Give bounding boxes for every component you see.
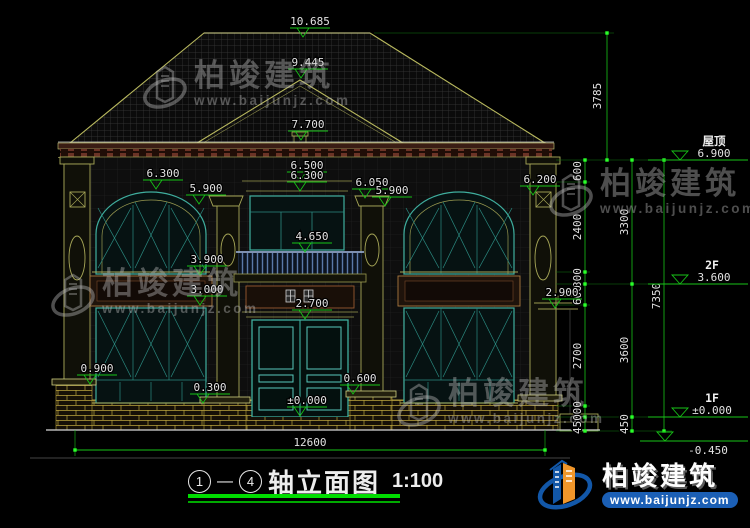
svg-text:6.300: 6.300 bbox=[290, 169, 323, 182]
svg-text:9.445: 9.445 bbox=[291, 56, 324, 69]
axis-dash: — bbox=[217, 473, 233, 491]
svg-text:3.900: 3.900 bbox=[190, 253, 223, 266]
level-roof: 屋顶 6.900 bbox=[648, 134, 748, 160]
door-step bbox=[248, 417, 352, 430]
svg-text:3.000: 3.000 bbox=[190, 283, 223, 296]
axis-bubble-end: 4 bbox=[239, 470, 262, 493]
svg-text:0.900: 0.900 bbox=[80, 362, 113, 375]
elevation-drawing: 3785 600 2400 300 600 2700 300 450 3300 … bbox=[0, 0, 750, 528]
svg-text:300: 300 bbox=[571, 268, 584, 288]
title-scale: 1:100 bbox=[392, 470, 443, 493]
svg-text:7.700: 7.700 bbox=[291, 118, 324, 131]
title-underline-2 bbox=[188, 501, 400, 503]
eave-cornice bbox=[58, 142, 554, 158]
level-1f: 1F ±0.000 bbox=[648, 391, 748, 417]
svg-text:屋顶: 屋顶 bbox=[703, 134, 726, 148]
svg-text:600: 600 bbox=[571, 161, 584, 181]
cad-elevation-screenshot: 3785 600 2400 300 600 2700 300 450 3300 … bbox=[0, 0, 750, 528]
brand-logo-block: 柏竣建筑 www.baijunjz.com bbox=[536, 455, 738, 517]
svg-text:2.900: 2.900 bbox=[545, 286, 578, 299]
svg-text:6.200: 6.200 bbox=[523, 173, 556, 186]
brand-name: 柏竣建筑 bbox=[602, 463, 738, 489]
svg-text:±0.000: ±0.000 bbox=[287, 394, 327, 407]
balcony-slab bbox=[234, 274, 366, 282]
level-2f: 2F 3.600 bbox=[648, 258, 748, 284]
balcony-railing bbox=[238, 253, 362, 274]
right-wing-windows bbox=[398, 192, 520, 403]
svg-text:450: 450 bbox=[571, 414, 584, 434]
svg-text:1F: 1F bbox=[705, 391, 719, 405]
svg-text:5.900: 5.900 bbox=[375, 184, 408, 197]
svg-text:0.600: 0.600 bbox=[343, 372, 376, 385]
svg-text:±0.000: ±0.000 bbox=[692, 404, 732, 417]
svg-text:6.300: 6.300 bbox=[146, 167, 179, 180]
svg-text:2700: 2700 bbox=[571, 343, 584, 370]
axis-bubble-start: 1 bbox=[188, 470, 211, 493]
svg-text:2F: 2F bbox=[705, 258, 719, 272]
brand-url: www.baijunjz.com bbox=[602, 492, 738, 508]
svg-text:3.600: 3.600 bbox=[697, 271, 730, 284]
svg-text:450: 450 bbox=[618, 414, 631, 434]
svg-text:2.700: 2.700 bbox=[295, 297, 328, 310]
svg-text:6.900: 6.900 bbox=[697, 147, 730, 160]
title-underline bbox=[188, 494, 400, 498]
svg-text:2400: 2400 bbox=[571, 214, 584, 241]
dim-total: 7350 bbox=[650, 283, 663, 310]
svg-text:0.300: 0.300 bbox=[193, 381, 226, 394]
dim-overall-width: 12600 bbox=[293, 436, 326, 449]
svg-text:10.685: 10.685 bbox=[290, 15, 330, 28]
level-ground: -0.450 bbox=[640, 432, 748, 457]
svg-text:4.650: 4.650 bbox=[295, 230, 328, 243]
svg-text:5.900: 5.900 bbox=[189, 182, 222, 195]
svg-text:3600: 3600 bbox=[618, 337, 631, 364]
dim-roof: 3785 bbox=[591, 83, 604, 110]
svg-text:3300: 3300 bbox=[618, 209, 631, 236]
brand-logo-icon bbox=[536, 455, 594, 517]
